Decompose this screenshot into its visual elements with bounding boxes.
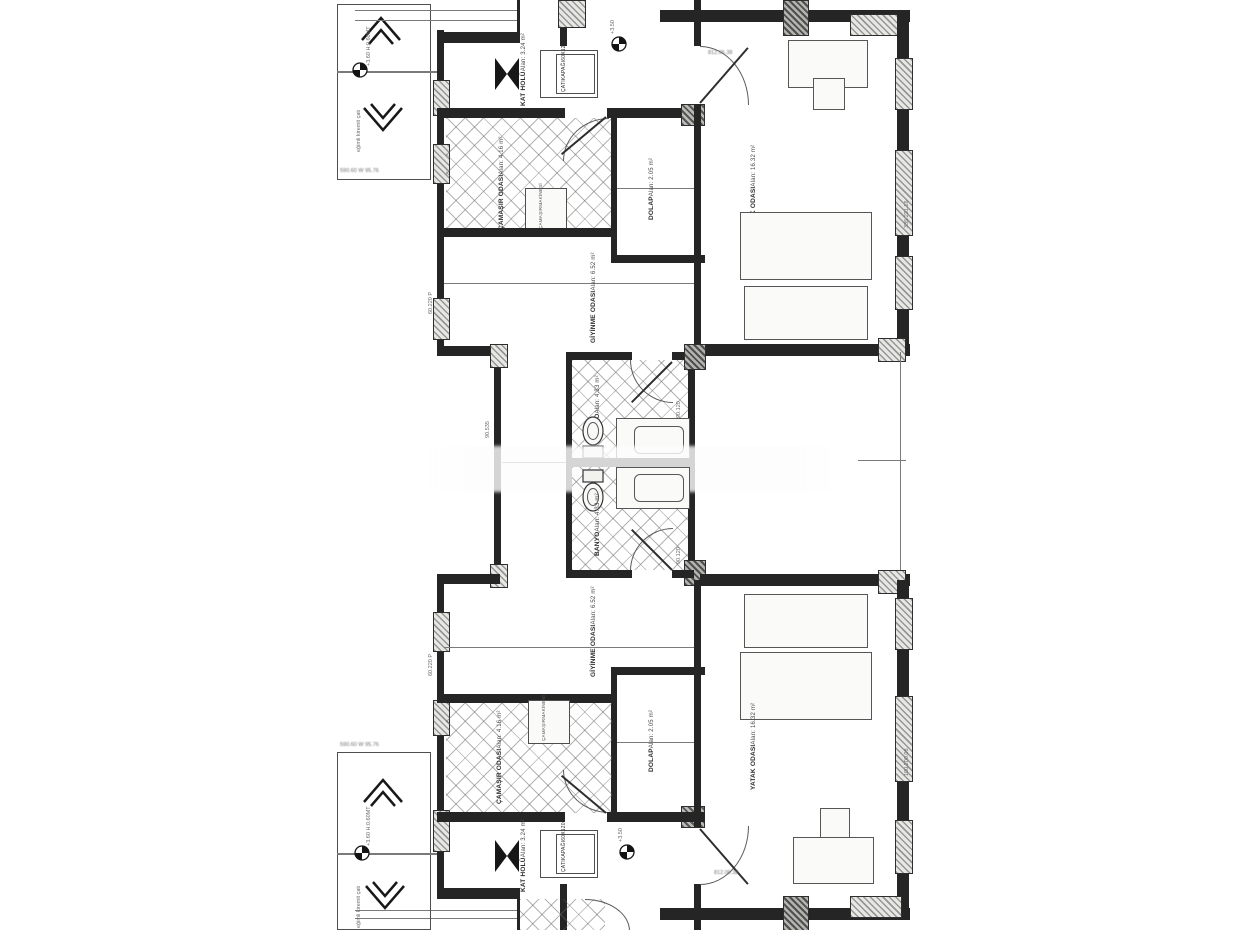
wall: [694, 112, 701, 344]
wall-column: [850, 896, 902, 918]
stair-line: [355, 10, 517, 11]
roof-hatch-inner-top: ÇATIKAPAĞI60X120: [556, 54, 595, 94]
washing-machine-box: ÇAMAŞIRMAKİNESİ: [525, 188, 567, 232]
wall: [566, 352, 632, 360]
roof-slope-chevron-down-icon: [360, 878, 410, 918]
chair: [813, 78, 845, 110]
wall-column: [850, 14, 902, 36]
desk: [793, 837, 874, 884]
wall: [437, 888, 520, 899]
stair-direction-bowtie-icon: [494, 834, 520, 878]
dimension-label: 100.200.08: [904, 706, 910, 776]
wall-column: [558, 0, 586, 28]
roof-slope-chevron-up-icon: [356, 8, 406, 48]
dimension-label: 90.535: [485, 382, 491, 438]
wall: [566, 570, 632, 578]
wall-column: [681, 104, 705, 126]
window-column: [895, 598, 913, 650]
wall-column: [433, 298, 450, 340]
roof-hatch-label: ÇATIKAPAĞI60X120: [561, 836, 569, 872]
roof-hatch-label: ÇATIKAPAĞI60X120: [561, 56, 569, 92]
door-arc: [585, 899, 630, 930]
wall: [694, 104, 701, 112]
dimension-label: 335.231.16: [904, 158, 910, 228]
roof-slope-chevron-down-icon: [358, 100, 408, 140]
room-label-yatak-bottom: YATAK ODASIAlan: 16.32 m²: [750, 700, 759, 792]
door-dimension-label: 812.06.38: [708, 50, 732, 56]
wall: [694, 580, 701, 827]
wall-column: [878, 338, 906, 362]
floor-plan-page: +3.60 H:0.60MT eğimli kiremit çatı 590.6…: [0, 0, 1250, 930]
stair-direction-bowtie-icon: [494, 52, 520, 96]
bed-footboard: [744, 594, 868, 648]
bathtub-basin: [634, 474, 684, 502]
window-column: [895, 256, 913, 310]
wall-column: [783, 0, 809, 36]
level-marker-icon: [611, 36, 627, 52]
wall: [437, 32, 520, 43]
wall: [694, 884, 701, 930]
wall-column: [433, 612, 450, 652]
wall: [694, 0, 701, 46]
room-label-banyo-bottom: BANYOAlan: 4.33 m²: [594, 490, 603, 560]
room-label-giyinme-top: GİYİNME ODASIAlan: 6.52 m²: [590, 252, 599, 344]
wall: [611, 255, 705, 263]
wall: [607, 812, 615, 822]
bed: [740, 652, 872, 720]
floor-plan-drawing: +3.60 H:0.60MT eğimli kiremit çatı 590.6…: [0, 0, 1250, 930]
washing-machine-box: ÇAMAŞIRMAKİNESİ: [528, 700, 570, 744]
wall: [611, 112, 617, 260]
room-label-dolap-top: DOLAPAlan: 2.05 m²: [648, 150, 657, 228]
dimension-label: 60.220 P: [428, 620, 434, 676]
wall: [611, 667, 705, 675]
door-dimension-label: 90.120: [676, 368, 682, 418]
room-label-camasir-top: ÇAMAŞIR ODASIAlan: 4.16 m²: [498, 138, 507, 230]
chair: [820, 808, 850, 840]
level-350-label: +3.50: [618, 818, 624, 842]
stair-line: [355, 20, 517, 21]
wall: [437, 108, 565, 118]
wall: [437, 812, 565, 822]
room-label-camasir-bottom: ÇAMAŞIR ODASIAlan: 4.16 m²: [496, 712, 505, 804]
door-dimension-label: 90.120: [676, 514, 682, 564]
wall: [517, 0, 520, 43]
room-label-kat-holu-bottom: KAT HOLÜAlan: 3.24 m²: [520, 834, 529, 892]
wall: [615, 812, 705, 822]
wall: [437, 694, 615, 703]
roof-hatch-inner-bottom: ÇATIKAPAĞI60X120: [556, 834, 595, 874]
dormer-midline: [337, 853, 437, 855]
wall: [672, 570, 694, 578]
room-label-dolap-bottom: DOLAPAlan: 2.05 m²: [648, 702, 657, 780]
void-boundary-line: [900, 352, 901, 578]
dimension-label: 590.60 W 95.76: [340, 742, 379, 748]
dimension-label: 60.220 P: [428, 258, 434, 314]
level-label: +3.60 H:0.60MT: [366, 798, 372, 846]
wall-column: [783, 896, 809, 930]
window-column: [895, 58, 913, 110]
washing-machine-label: ÇAMAŞIRMAKİNESİ: [541, 703, 547, 741]
level-350-label: +3.50: [610, 10, 616, 34]
wall-column: [490, 344, 508, 368]
door-dimension-label: 812.06.38: [714, 870, 738, 876]
bed-footboard: [744, 286, 868, 340]
level-label: +3.60 H:0.60MT: [366, 18, 372, 66]
wall: [437, 228, 615, 237]
reference-line: [444, 283, 694, 284]
level-marker-icon: [354, 845, 370, 861]
washing-machine-label: ÇAMAŞIRMAKİNESİ: [538, 191, 544, 229]
window-column: [895, 820, 913, 874]
void-line: [858, 460, 906, 461]
level-marker-icon: [619, 844, 635, 860]
reference-line: [444, 647, 694, 648]
room-label-kat-holu-top: KAT HOLÜAlan: 3.24 m²: [520, 48, 529, 106]
wall: [437, 574, 500, 584]
dimension-label: 590.60 W 95.76: [340, 168, 379, 174]
bed: [740, 212, 872, 280]
room-label-giyinme-bottom: GİYİNME ODASIAlan: 6.52 m²: [590, 586, 599, 678]
